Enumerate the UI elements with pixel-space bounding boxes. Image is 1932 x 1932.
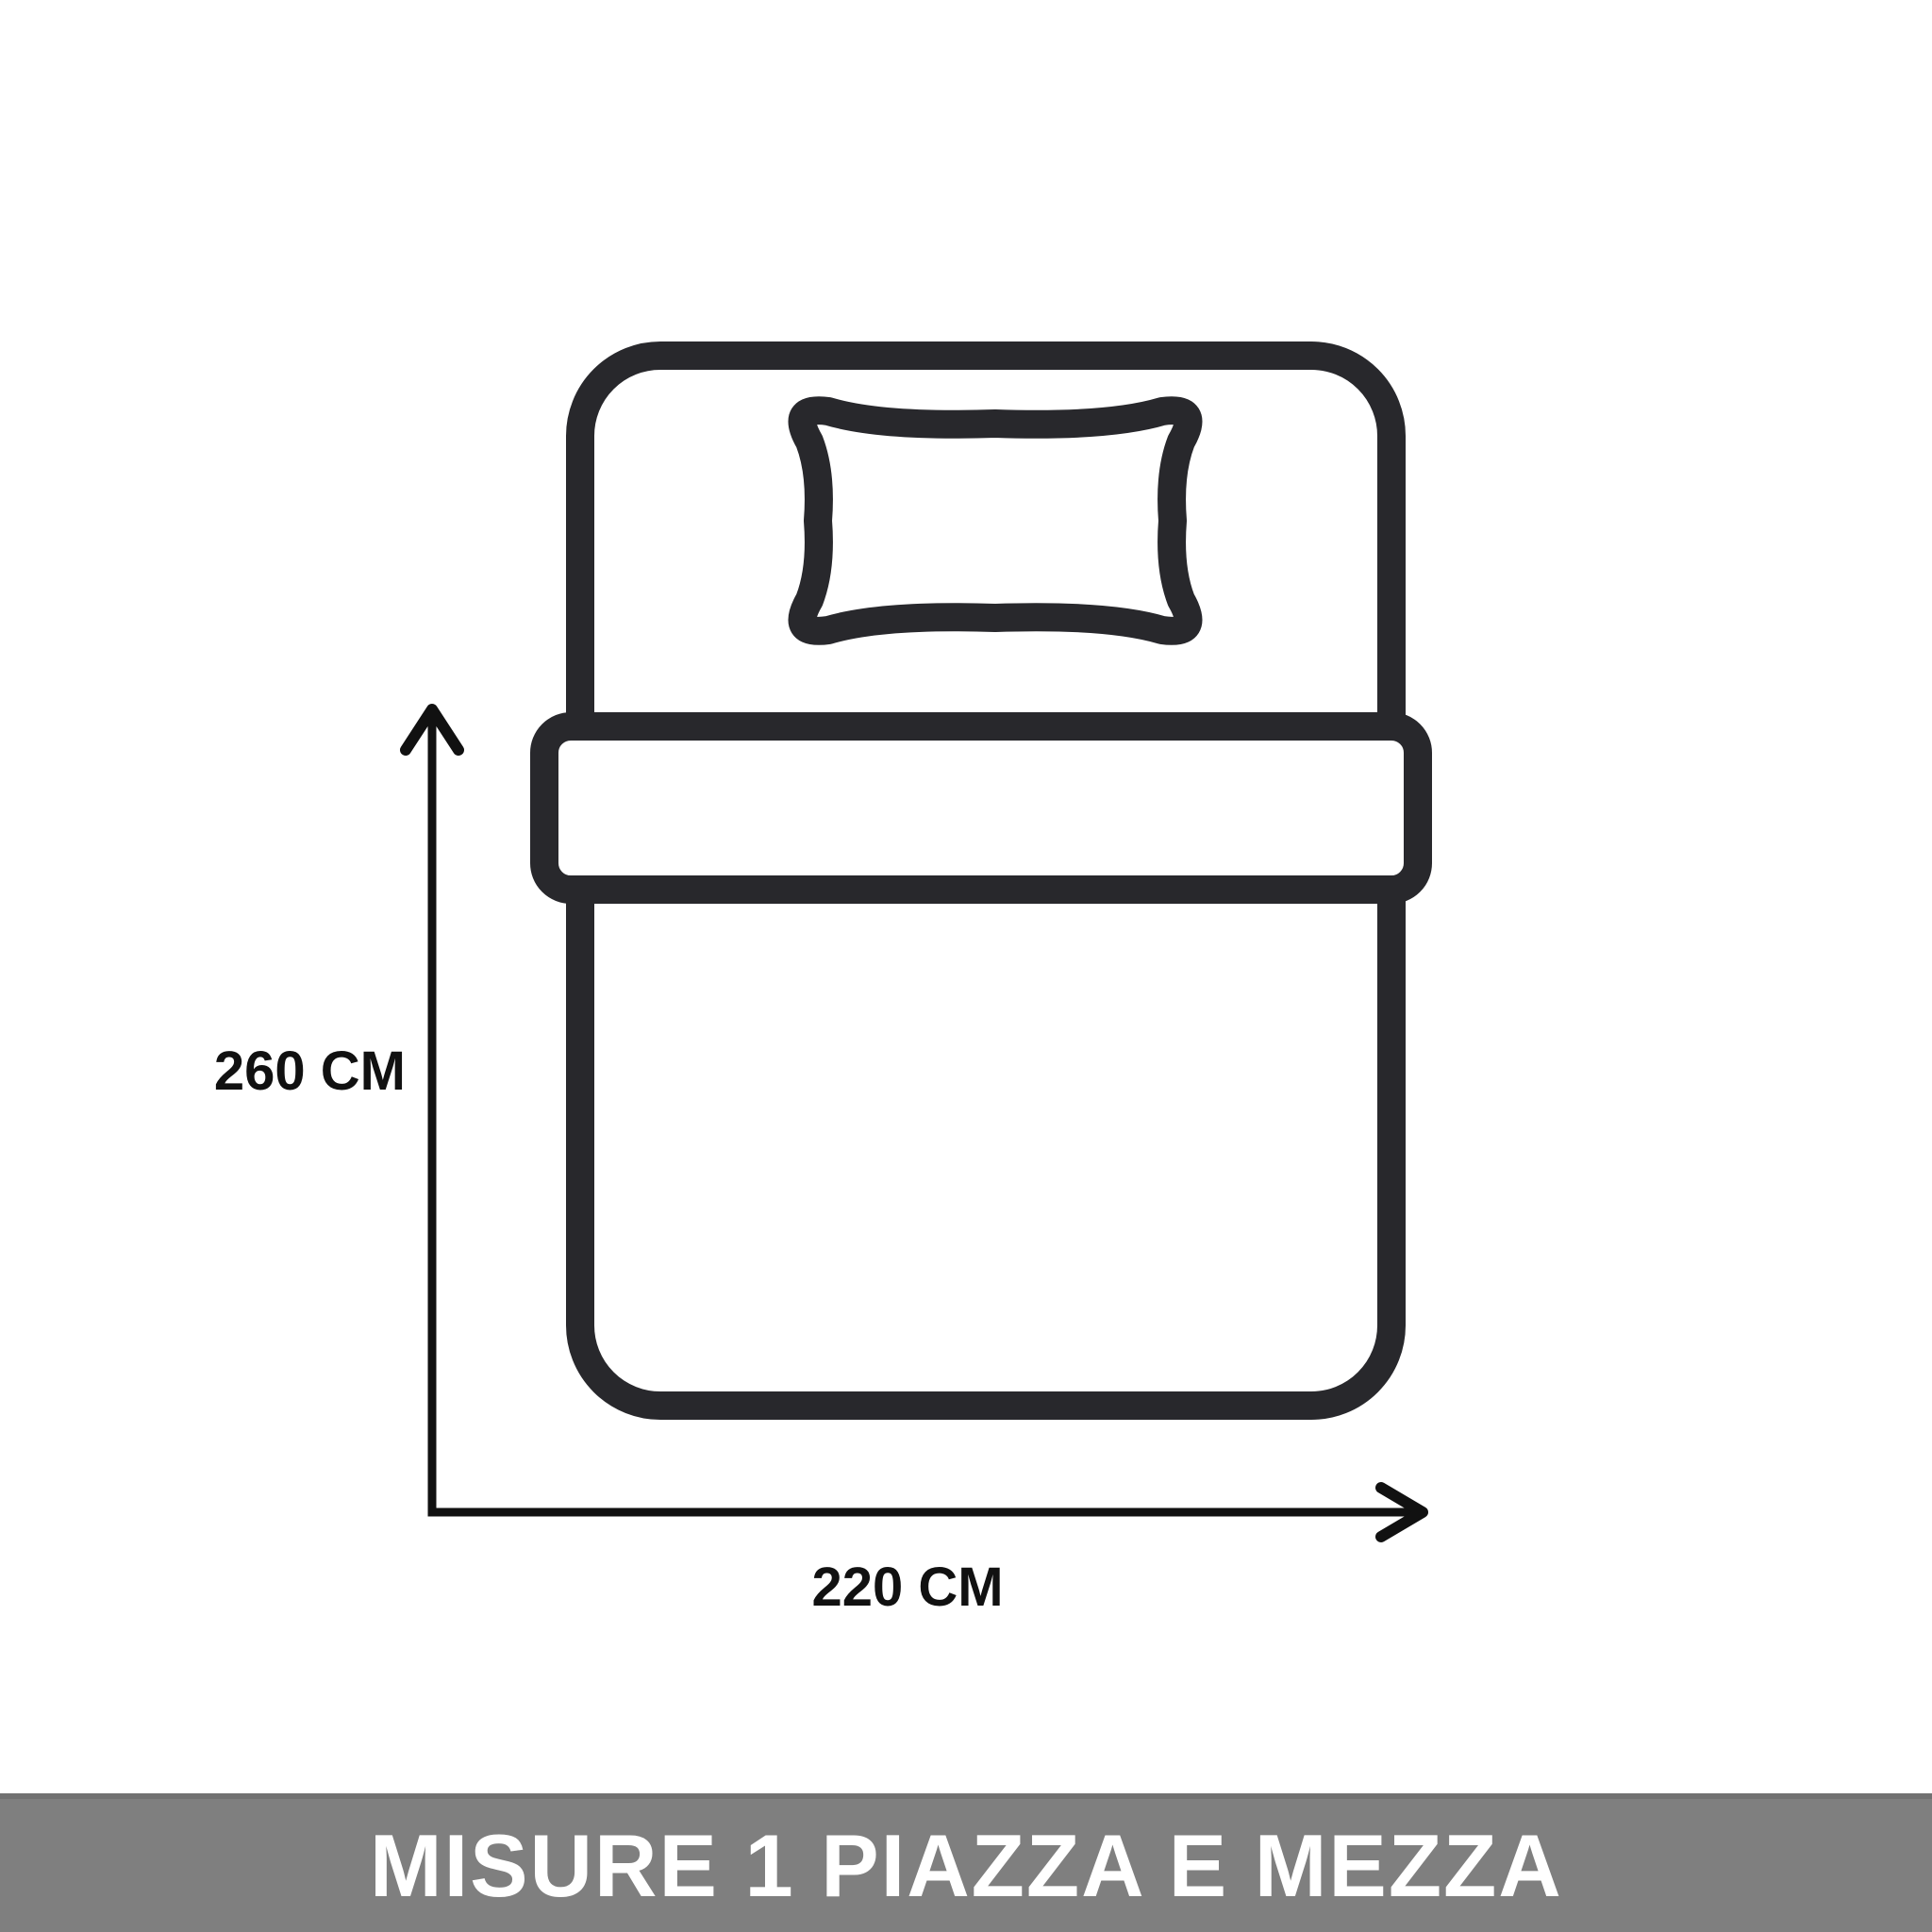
height-dimension-label: 260 CM — [214, 1041, 406, 1102]
size-banner: MISURE 1 PIAZZA E MEZZA — [0, 1793, 1932, 1932]
pillow-icon — [802, 410, 1188, 631]
bedding-size-diagram-page: 260 CM 220 CM MISURE 1 PIAZZA E MEZZA — [0, 0, 1932, 1932]
banner-title: MISURE 1 PIAZZA E MEZZA — [370, 1822, 1563, 1910]
width-dimension-label: 220 CM — [811, 1557, 1003, 1618]
bed-measurement-diagram: 260 CM 220 CM — [0, 0, 1932, 1932]
sheet-band — [544, 726, 1418, 890]
